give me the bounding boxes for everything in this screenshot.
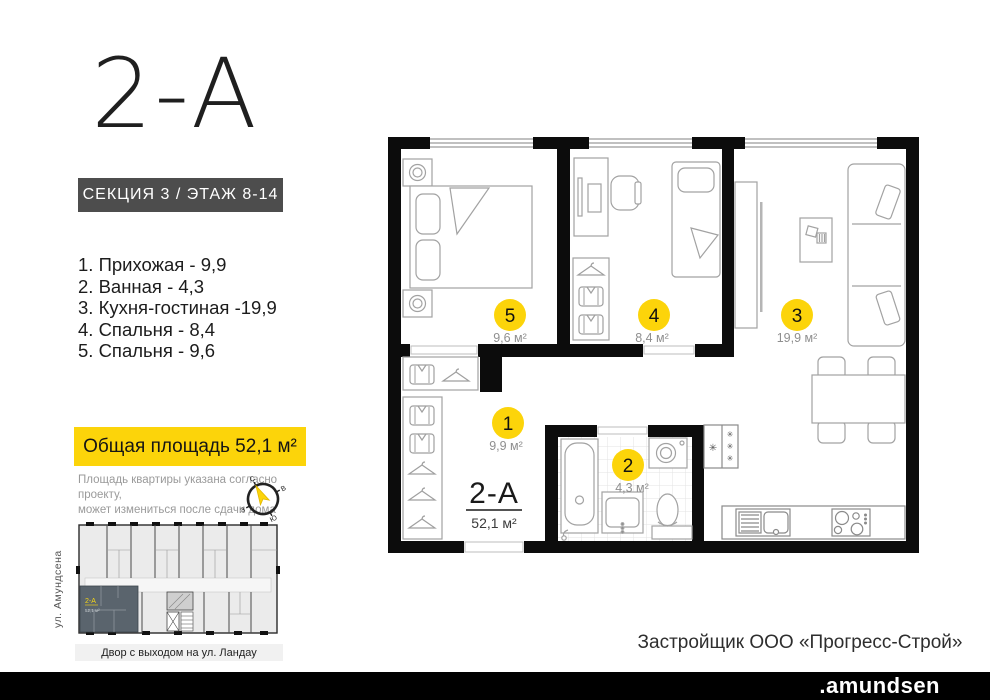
mini-apartment-label: 2-А bbox=[85, 598, 96, 605]
room5-badge: 5 9,6 м² bbox=[493, 299, 527, 345]
svg-text:2: 2 bbox=[623, 456, 634, 477]
room-list-item: 1. Прихожая - 9,9 bbox=[78, 254, 277, 276]
svg-text:✳: ✳ bbox=[727, 454, 734, 463]
living-room-furniture bbox=[735, 164, 905, 443]
svg-text:5: 5 bbox=[505, 306, 516, 327]
highlighted-apartment: 2-А 52,1 м² bbox=[80, 586, 138, 632]
hallway-closets bbox=[403, 357, 478, 539]
svg-text:✳: ✳ bbox=[727, 442, 734, 451]
bedroom5-furniture bbox=[403, 159, 532, 317]
floor-plan: ✳ ✳ ✳ ✳ bbox=[386, 134, 921, 554]
svg-text:✳: ✳ bbox=[709, 443, 717, 454]
total-area-badge: Общая площадь 52,1 м² bbox=[74, 427, 306, 466]
room3-badge: 3 19,9 м² bbox=[777, 299, 818, 345]
room-list-item: 3. Кухня-гостиная -19,9 bbox=[78, 297, 277, 319]
dining-chair bbox=[818, 421, 845, 443]
building-mini-plan: 2-А 52,1 м² bbox=[74, 518, 284, 642]
dining-table bbox=[812, 375, 905, 423]
toilet bbox=[657, 494, 678, 526]
plan-apartment-area: 52,1 м² bbox=[471, 515, 517, 531]
svg-text:19,9 м²: 19,9 м² bbox=[777, 331, 818, 345]
svg-text:4,3 м²: 4,3 м² bbox=[615, 481, 649, 495]
room4-badge: 4 8,4 м² bbox=[635, 299, 670, 345]
dining-chair bbox=[868, 421, 895, 443]
svg-text:4: 4 bbox=[649, 306, 660, 327]
apartment-title: 2-А bbox=[55, 42, 295, 148]
room1-badge: 1 9,9 м² bbox=[489, 407, 524, 453]
compass-east: В bbox=[280, 485, 288, 494]
apartment-flyer: 2-А СЕКЦИЯ 3 / ЭТАЖ 8-14 1. Прихожая - 9… bbox=[0, 0, 990, 700]
plan-apartment-label: 2-А 52,1 м² bbox=[466, 477, 522, 531]
room-list-item: 5. Спальня - 9,6 bbox=[78, 340, 277, 362]
work-table bbox=[800, 218, 832, 262]
brand-logo: .amundsen bbox=[819, 673, 940, 699]
tv-unit bbox=[735, 182, 757, 328]
svg-text:8,4 м²: 8,4 м² bbox=[635, 331, 669, 345]
svg-text:1: 1 bbox=[503, 414, 514, 435]
street-label-landau: Двор с выходом на ул. Ландау bbox=[75, 644, 283, 661]
svg-text:✳: ✳ bbox=[727, 430, 734, 439]
plan-apartment-code: 2-А bbox=[469, 477, 519, 510]
svg-text:9,6 м²: 9,6 м² bbox=[493, 331, 527, 345]
developer-label: Застройщик ООО «Прогресс-Строй» bbox=[620, 632, 980, 654]
mini-apartment-area: 52,1 м² bbox=[85, 608, 100, 613]
tv-screen bbox=[760, 202, 763, 312]
compass-icon: С Ю З В bbox=[237, 472, 289, 524]
windows bbox=[430, 139, 877, 147]
svg-text:3: 3 bbox=[792, 306, 803, 327]
footer-bar: .amundsen bbox=[0, 672, 990, 700]
compass-west: З bbox=[240, 507, 247, 515]
room-list-item: 2. Ванная - 4,3 bbox=[78, 276, 277, 298]
street-label-amundsena: ул. Амундсена bbox=[52, 538, 64, 640]
svg-text:9,9 м²: 9,9 м² bbox=[489, 439, 523, 453]
room-list-item: 4. Спальня - 8,4 bbox=[78, 319, 277, 341]
room-list: 1. Прихожая - 9,9 2. Ванная - 4,3 3. Кух… bbox=[78, 254, 277, 362]
compass-north: С bbox=[249, 475, 257, 484]
section-floor-badge: СЕКЦИЯ 3 / ЭТАЖ 8-14 bbox=[78, 178, 283, 212]
toilet-shelf bbox=[652, 526, 692, 539]
